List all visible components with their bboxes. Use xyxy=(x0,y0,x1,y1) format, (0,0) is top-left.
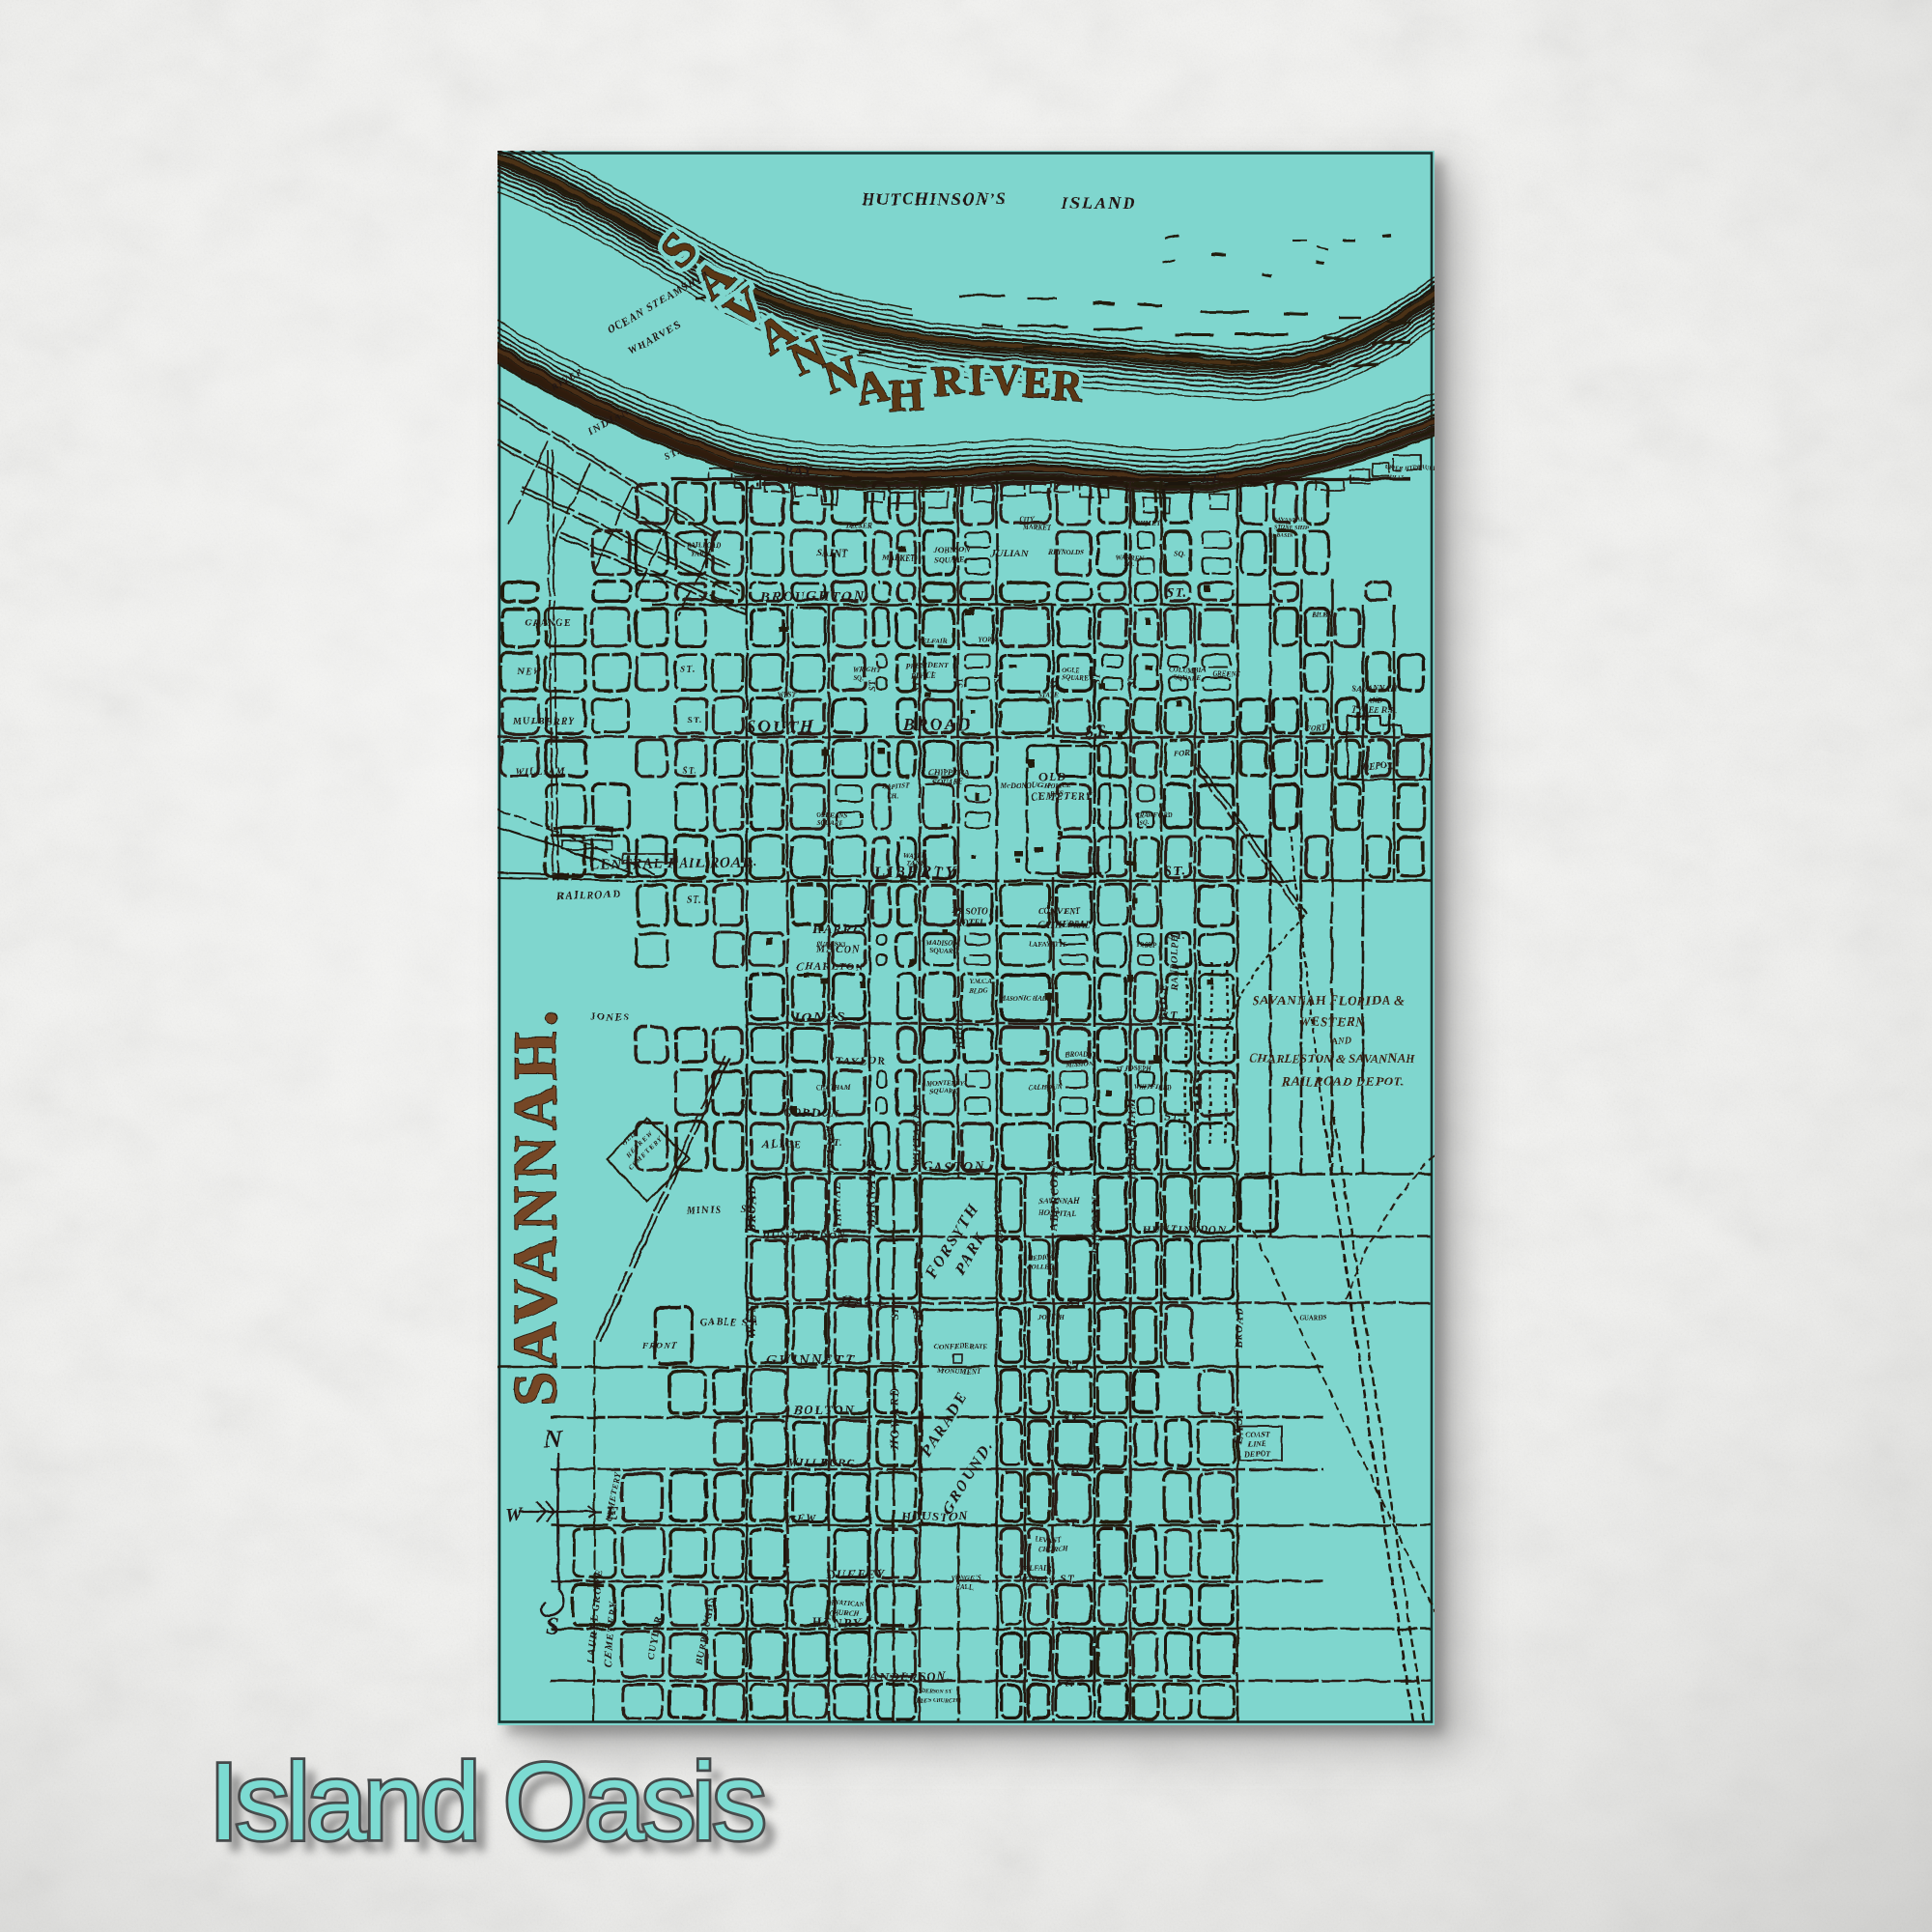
svg-text:SQUARE: SQUARE xyxy=(932,778,963,786)
svg-text:ISLAND: ISLAND xyxy=(1061,193,1137,213)
svg-text:A: A xyxy=(851,360,893,416)
svg-text:HOSPITAL: HOSPITAL xyxy=(1018,1576,1057,1584)
svg-text:BARNARD: BARNARD xyxy=(864,1157,878,1229)
svg-text:R: R xyxy=(1050,361,1085,411)
svg-text:LEVANT: LEVANT xyxy=(1034,1536,1062,1544)
svg-text:ST.: ST. xyxy=(1060,1572,1079,1585)
svg-text:DE SOTO: DE SOTO xyxy=(951,906,989,916)
svg-text:GRANGE: GRANGE xyxy=(525,618,572,629)
svg-text:ABERCORN: ABERCORN xyxy=(1047,1159,1061,1232)
svg-text:ST.: ST. xyxy=(1056,1676,1075,1690)
svg-text:COLUMBIA: COLUMBIA xyxy=(1170,667,1207,674)
svg-text:ST.: ST. xyxy=(1058,1624,1077,1637)
svg-text:MONTEREY: MONTEREY xyxy=(925,1080,965,1088)
svg-text:WEST: WEST xyxy=(778,692,797,699)
svg-text:JACKSON: JACKSON xyxy=(826,1124,837,1176)
svg-text:BROAD: BROAD xyxy=(1065,1051,1089,1059)
svg-text:BROAD: BROAD xyxy=(902,715,973,734)
svg-text:TAYNAL: TAYNAL xyxy=(832,1181,843,1228)
svg-text:YORK: YORK xyxy=(979,636,998,643)
svg-text:DUFFEY: DUFFEY xyxy=(825,1567,886,1581)
svg-text:CHARLESTON & SAVANNAH: CHARLESTON & SAVANNAH xyxy=(1249,1051,1416,1065)
svg-text:BLDG: BLDG xyxy=(968,987,987,995)
svg-text:BASIN: BASIN xyxy=(1275,533,1294,539)
svg-text:UPPER HYDRAULIC: UPPER HYDRAULIC xyxy=(1384,466,1435,471)
svg-text:BILBO: BILBO xyxy=(1311,611,1332,618)
svg-text:TANK: TANK xyxy=(907,860,926,867)
svg-text:CRAWFORD: CRAWFORD xyxy=(1135,811,1173,819)
svg-text:EAST: EAST xyxy=(1231,1406,1245,1446)
svg-text:NEW: NEW xyxy=(516,667,542,677)
svg-text:ST.: ST. xyxy=(681,665,696,674)
svg-text:SQ.: SQ. xyxy=(1139,819,1150,827)
svg-text:WHARVES: WHARVES xyxy=(627,319,683,358)
svg-text:ALICE: ALICE xyxy=(761,1137,803,1151)
svg-text:LAFAYETTE: LAFAYETTE xyxy=(1028,941,1067,949)
svg-text:BKS: BKS xyxy=(1049,790,1063,798)
svg-text:COAST: COAST xyxy=(1245,1431,1271,1439)
svg-text:HENRY: HENRY xyxy=(811,1615,863,1630)
svg-text:FRONT: FRONT xyxy=(641,1341,678,1350)
svg-text:ST.: ST. xyxy=(683,765,698,775)
svg-text:HUNTINGDON: HUNTINGDON xyxy=(1142,1224,1227,1236)
svg-text:MASONIC HALL: MASONIC HALL xyxy=(999,995,1051,1003)
svg-text:CEMETERY: CEMETERY xyxy=(604,1470,622,1523)
svg-text:MADISON: MADISON xyxy=(925,939,959,947)
svg-text:SQ.: SQ. xyxy=(1123,560,1134,568)
svg-text:EMMET: EMMET xyxy=(1134,520,1161,527)
svg-text:HOUSTON: HOUSTON xyxy=(900,1509,969,1523)
svg-text:ST.: ST. xyxy=(1067,1294,1088,1309)
svg-text:W: W xyxy=(505,1504,524,1525)
svg-text:WESTERN: WESTERN xyxy=(1299,1014,1366,1029)
svg-text:V: V xyxy=(990,356,1021,404)
svg-text:LAUREL GROVE: LAUREL GROVE xyxy=(585,1569,606,1665)
svg-text:ST.: ST. xyxy=(1064,1411,1083,1425)
svg-text:GASTON: GASTON xyxy=(923,1160,985,1175)
svg-text:BROAD: BROAD xyxy=(744,1184,758,1234)
svg-text:ST: ST xyxy=(994,671,1005,684)
svg-text:TYBEE R.R.: TYBEE R.R. xyxy=(1351,705,1398,715)
svg-text:CATHEDRAL: CATHEDRAL xyxy=(1038,920,1092,929)
svg-text:POLICE: POLICE xyxy=(1046,782,1071,790)
svg-text:TELFAIR: TELFAIR xyxy=(1019,1564,1052,1573)
svg-text:BULL: BULL xyxy=(952,1015,966,1050)
svg-text:DRAYTON: DRAYTON xyxy=(993,1196,1005,1253)
svg-text:GWINNETT: GWINNETT xyxy=(766,1352,855,1368)
svg-text:BOLTON: BOLTON xyxy=(792,1404,856,1418)
svg-text:TAYLOR: TAYLOR xyxy=(836,1054,887,1067)
svg-text:ST JOSEPH: ST JOSEPH xyxy=(1116,1065,1151,1072)
svg-text:SQ.: SQ. xyxy=(1174,550,1185,558)
svg-text:MARKET: MARKET xyxy=(1022,524,1052,531)
svg-text:CHARLTON: CHARLTON xyxy=(797,961,864,973)
svg-text:ST.: ST. xyxy=(1166,586,1187,601)
svg-text:CHIPPEWA: CHIPPEWA xyxy=(928,768,969,777)
svg-text:SAVANNAH: SAVANNAH xyxy=(1351,684,1399,694)
svg-text:HOWARD: HOWARD xyxy=(887,1386,901,1451)
svg-text:ST: ST xyxy=(833,1220,843,1233)
svg-text:ST.: ST. xyxy=(687,715,702,724)
svg-text:RAILROAD: RAILROAD xyxy=(556,889,621,902)
svg-text:ST: ST xyxy=(867,679,878,692)
svg-text:ST: ST xyxy=(912,1307,923,1320)
svg-text:AND: AND xyxy=(1331,1037,1352,1046)
svg-text:BURROUGHS: BURROUGHS xyxy=(695,1596,717,1666)
svg-text:FORT: FORT xyxy=(1173,749,1195,757)
svg-text:LINE: LINE xyxy=(1247,1440,1266,1449)
svg-text:NEW: NEW xyxy=(786,1512,817,1525)
svg-text:ST.: ST. xyxy=(1203,471,1223,486)
svg-text:CEMETERY: CEMETERY xyxy=(602,1600,619,1667)
svg-text:PRESIDENT: PRESIDENT xyxy=(905,662,950,670)
svg-text:SQ.: SQ. xyxy=(853,674,864,682)
svg-text:SQUARE: SQUARE xyxy=(816,819,843,827)
svg-text:WATER: WATER xyxy=(903,852,926,860)
svg-text:MARKET: MARKET xyxy=(881,554,915,562)
svg-text:MULBERRY: MULBERRY xyxy=(512,717,575,727)
svg-text:HALL: HALL xyxy=(840,1294,888,1310)
svg-text:STONE SHIP: STONE SHIP xyxy=(1274,526,1308,531)
svg-text:RAILROAD: RAILROAD xyxy=(686,541,722,549)
svg-text:MEDICAL: MEDICAL xyxy=(1026,1254,1058,1262)
svg-text:BAY: BAY xyxy=(782,465,812,479)
svg-text:REYNOLDS: REYNOLDS xyxy=(1047,549,1084,556)
svg-text:HABERSHAM: HABERSHAM xyxy=(1124,1097,1138,1180)
svg-text:PRES CHURCH: PRES CHURCH xyxy=(917,1698,958,1704)
svg-text:MINIS: MINIS xyxy=(686,1206,721,1216)
svg-text:WHITFIELD: WHITFIELD xyxy=(1133,1084,1172,1092)
svg-text:ANDERSON: ANDERSON xyxy=(869,1669,947,1684)
svg-text:MONUMENT: MONUMENT xyxy=(937,1367,981,1376)
svg-text:E: E xyxy=(1022,358,1052,407)
svg-text:CHATHAM: CHATHAM xyxy=(816,1084,851,1092)
svg-text:JULIAN: JULIAN xyxy=(989,548,1030,559)
svg-text:I: I xyxy=(968,355,986,404)
svg-text:PLACE: PLACE xyxy=(911,671,936,680)
svg-text:DECKER: DECKER xyxy=(844,522,873,529)
svg-text:GROUND.: GROUND. xyxy=(939,1437,997,1517)
svg-text:N: N xyxy=(543,1425,563,1453)
svg-text:JONES: JONES xyxy=(792,1010,846,1026)
svg-text:GREENE: GREENE xyxy=(1212,670,1240,678)
svg-text:ST: ST xyxy=(891,1307,901,1320)
svg-text:TROUP: TROUP xyxy=(1135,941,1158,949)
svg-text:FORT: FORT xyxy=(1304,724,1326,732)
svg-text:GUARDS: GUARDS xyxy=(1299,1314,1327,1321)
svg-text:ST: ST xyxy=(912,679,923,692)
svg-text:ORLEANS: ORLEANS xyxy=(816,811,847,819)
svg-text:WRIGHT: WRIGHT xyxy=(853,667,881,674)
svg-text:JOHNSON: JOHNSON xyxy=(933,546,972,554)
svg-text:ST.: ST. xyxy=(687,895,703,906)
svg-text:MILLS: MILLS xyxy=(1385,475,1405,481)
svg-text:YARDS: YARDS xyxy=(691,551,712,558)
svg-text:Y.M.C.A.: Y.M.C.A. xyxy=(969,978,995,985)
svg-text:ST.: ST. xyxy=(1085,724,1109,740)
svg-text:YONGE'S: YONGE'S xyxy=(952,1575,980,1582)
svg-text:CITY: CITY xyxy=(1019,516,1036,524)
svg-text:JONES: JONES xyxy=(589,1011,630,1023)
svg-text:CALHOUN: CALHOUN xyxy=(1029,1084,1063,1092)
svg-text:SQUARE: SQUARE xyxy=(934,555,965,564)
svg-text:OCEAN STEAMSHIP: OCEAN STEAMSHIP xyxy=(606,270,711,337)
svg-text:ST.: ST. xyxy=(1062,1462,1081,1475)
svg-text:SAINT: SAINT xyxy=(816,548,849,559)
svg-text:HUTCHINSON’S: HUTCHINSON’S xyxy=(861,189,1007,209)
svg-text:McDONOUGH: McDONOUGH xyxy=(999,781,1050,790)
svg-text:CONVENT: CONVENT xyxy=(1038,906,1081,916)
svg-text:PARADE: PARADE xyxy=(918,1389,971,1460)
svg-text:WEST: WEST xyxy=(744,1292,759,1339)
svg-text:ST.: ST. xyxy=(1065,1358,1086,1373)
svg-text:BROAD: BROAD xyxy=(1234,1307,1245,1350)
svg-text:TELFAIR: TELFAIR xyxy=(919,638,948,645)
svg-text:ST: ST xyxy=(1127,675,1138,688)
svg-text:HOTEL: HOTEL xyxy=(954,918,985,927)
svg-text:STATE: STATE xyxy=(1038,692,1059,699)
svg-text:OGLE: OGLE xyxy=(1062,667,1080,674)
svg-text:ST.: ST. xyxy=(1060,1163,1080,1178)
svg-text:GORDON: GORDON xyxy=(783,1106,840,1120)
svg-text:PRICE: PRICE xyxy=(1157,983,1169,1020)
svg-text:RAILROAD DEPOT.: RAILROAD DEPOT. xyxy=(1281,1074,1405,1089)
svg-text:HALL: HALL xyxy=(954,1584,974,1592)
svg-text:CONFEDERATE: CONFEDERATE xyxy=(934,1342,987,1350)
svg-text:WHITAKER: WHITAKER xyxy=(911,1103,923,1167)
svg-text:S: S xyxy=(546,1614,558,1639)
svg-text:CHURCH: CHURCH xyxy=(830,1609,860,1617)
svg-text:SQUARE: SQUARE xyxy=(930,947,957,954)
svg-text:SAVANNAH: SAVANNAH xyxy=(1274,518,1305,524)
svg-text:ST.: ST. xyxy=(1164,864,1186,879)
svg-text:SQUARE: SQUARE xyxy=(930,1088,957,1095)
svg-text:BAPTIST: BAPTIST xyxy=(881,782,911,790)
svg-text:PULASKI: PULASKI xyxy=(816,941,845,949)
svg-text:SQUARE: SQUARE xyxy=(1062,674,1089,682)
svg-text:MISSION: MISSION xyxy=(1065,1061,1095,1068)
svg-text:CENTRAL RAIL ROAD.: CENTRAL RAIL ROAD. xyxy=(590,855,758,873)
svg-text:SAVANNAH: SAVANNAH xyxy=(1038,1197,1080,1206)
svg-text:ST: ST xyxy=(1050,677,1061,690)
svg-text:ST: ST xyxy=(955,675,966,688)
svg-text:SAVANNAH FLORIDA &: SAVANNAH FLORIDA & xyxy=(1253,993,1405,1008)
svg-text:ST.: ST. xyxy=(1062,1516,1081,1529)
svg-text:JOSEPH: JOSEPH xyxy=(1037,1314,1065,1321)
svg-text:RANDOLPH: RANDOLPH xyxy=(1170,933,1180,992)
svg-text:COLLEGE: COLLEGE xyxy=(1027,1264,1059,1271)
svg-text:R: R xyxy=(931,355,967,406)
svg-text:WILLIAM: WILLIAM xyxy=(515,767,566,778)
svg-text:H: H xyxy=(887,370,925,422)
svg-text:WILLBURG: WILLBURG xyxy=(787,1456,856,1469)
svg-text:ST: ST xyxy=(1092,671,1102,684)
svg-text:HOSPITAL: HOSPITAL xyxy=(1037,1208,1076,1217)
svg-text:DEVATICAN: DEVATICAN xyxy=(825,1600,865,1607)
svg-text:DEPOT: DEPOT xyxy=(1243,1450,1271,1459)
svg-text:AND: AND xyxy=(1366,696,1383,704)
svg-text:CH.: CH. xyxy=(888,792,899,800)
svg-text:SOUTH: SOUTH xyxy=(747,717,815,736)
svg-text:BROUGHTON: BROUGHTON xyxy=(759,589,865,605)
svg-text:CHURCH: CHURCH xyxy=(1038,1546,1068,1553)
svg-text:ST.: ST. xyxy=(1164,1110,1183,1123)
svg-text:ANDERSON ST: ANDERSON ST xyxy=(912,1689,953,1694)
svg-text:SAVANNAH.: SAVANNAH. xyxy=(500,1005,569,1406)
svg-text:DEPOT.: DEPOT. xyxy=(1362,761,1393,771)
svg-text:SQUARE: SQUARE xyxy=(1174,674,1201,682)
svg-text:LINCOLN: LINCOLN xyxy=(1089,1196,1102,1256)
